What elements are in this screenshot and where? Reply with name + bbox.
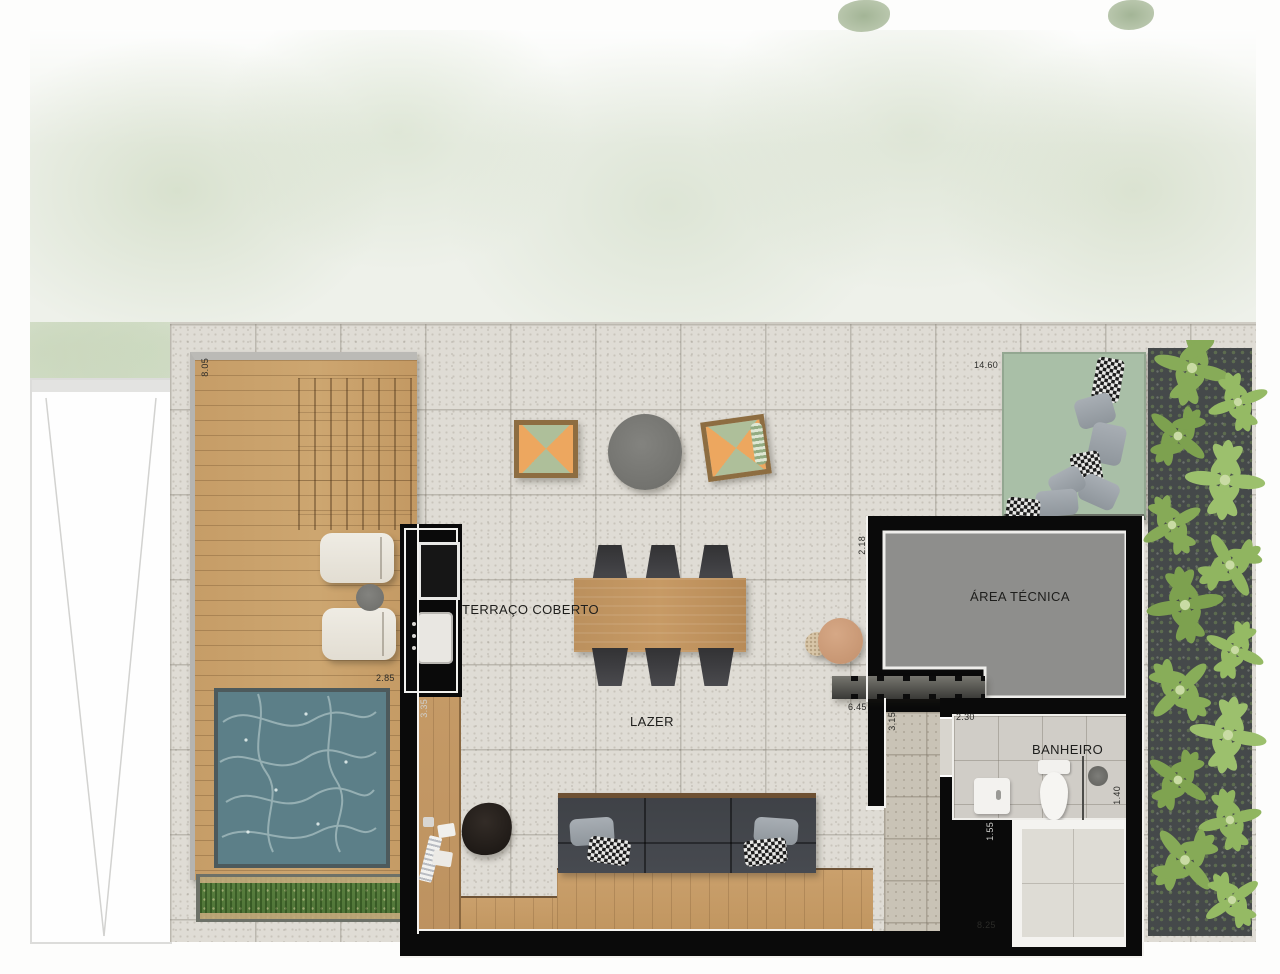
hallway-floor [884,712,944,931]
grill-cooktop-icon [418,542,460,600]
tree-sprig-icon [1108,0,1154,30]
daybed-pillow [1035,488,1079,518]
sink-knob-icon [412,646,416,650]
wall-end-cap [866,806,886,810]
neighbor-roof [30,378,172,944]
shaft-wall-left [940,830,1014,958]
room-label-terraco: TERRAÇO COBERTO [462,602,599,617]
dim-stair-run: 6.45 [848,702,867,712]
sun-lounger [320,533,394,583]
wall-hairline [417,929,872,931]
vegetation-background [30,30,1256,322]
jacuzzi-pool [214,688,390,868]
sofa-cushion-divider [730,798,732,873]
sideboard [417,690,461,933]
planter-foliage [1130,340,1280,950]
shaft-grid-line [1022,883,1124,884]
patterned-armchair [514,420,578,478]
staircase [832,676,985,699]
dining-table [574,578,746,652]
kitchen-counter [400,524,462,697]
tree-sprig-icon [838,0,890,32]
roof-x-bracing-icon [32,380,170,942]
sofa-pillow-patterned [743,837,788,867]
wall-hairline [884,698,886,808]
paper-item [432,850,453,868]
shaft-room [1012,820,1134,947]
dim-deck-depth: 8.05 [200,358,210,377]
shower-glass-line [1082,756,1084,820]
room-label-banheiro: BANHEIRO [1032,742,1103,757]
sink-knob-icon [412,634,416,638]
wall-hallway [868,698,884,810]
room-label-area-tecnica: ÁREA TÉCNICA [970,589,1070,604]
tray-item [423,817,434,827]
round-coffee-table [608,414,682,490]
paper-item [437,823,456,838]
wall-hairline [400,956,1142,958]
floor-plan-canvas: TERRAÇO COBERTO LAZER ÁREA TÉCNICA BANHE… [0,0,1280,974]
dim-deck-width: 2.85 [376,673,395,683]
pergola-slats [298,378,412,530]
large-pouf [818,618,863,664]
dim-banheiro-depth: 1.40 [1112,786,1122,805]
water-ripples-icon [218,692,378,856]
sink-knob-icon [412,622,416,626]
grass-planter [196,874,414,922]
shower-head-icon [1088,766,1108,786]
cushion-roll [750,422,768,465]
sun-lounger [322,608,396,660]
bathroom-sink-icon [974,778,1010,814]
vegetation-left-strip [30,322,170,380]
sofa-cushion-divider [644,798,646,873]
dim-shaft-width: 1.55 [985,822,995,841]
patterned-armchair [700,414,772,482]
dim-lazer-width: 8.25 [977,920,996,930]
shaft-floor [1022,829,1124,937]
dim-counter-run: 3.35 [419,699,429,718]
wood-floor-band [557,868,873,936]
door-opening [940,717,952,777]
dim-hall-depth: 3.15 [887,712,897,731]
room-label-lazer: LAZER [630,714,674,729]
lounger-side-table [356,584,384,611]
dim-terrace-width: 14.60 [974,360,998,370]
grass-strip [200,877,410,919]
faucet-dot-icon [996,790,1001,800]
dim-tecnica-wall: 2.18 [857,536,867,555]
wall-hairline [417,524,419,934]
dim-banheiro-width: 2.30 [956,712,975,722]
sink-icon [417,612,453,664]
